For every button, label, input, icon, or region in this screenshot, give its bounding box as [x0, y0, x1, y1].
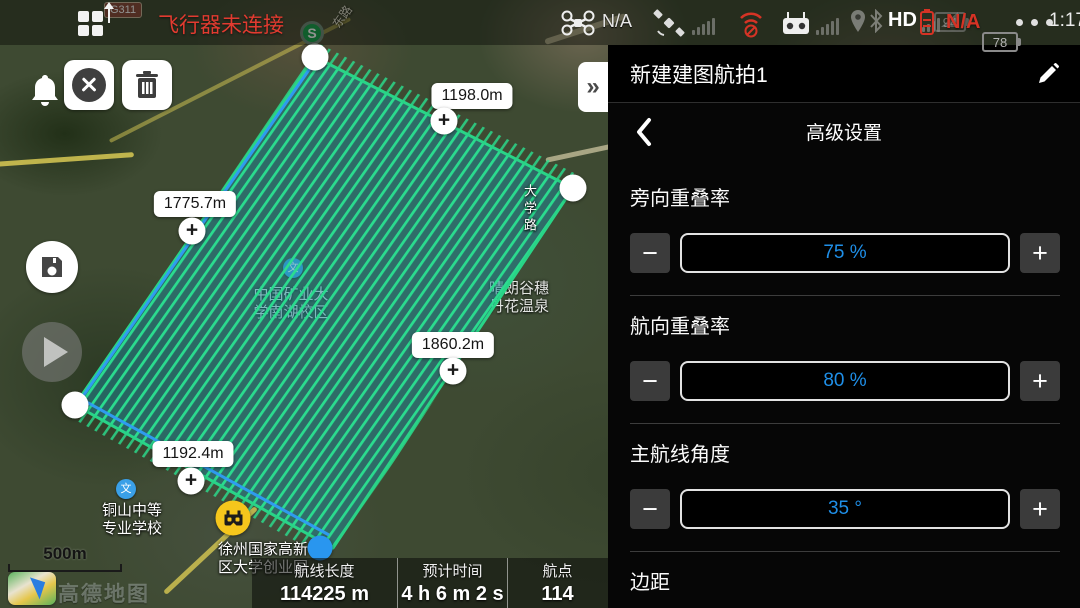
- increment-button[interactable]: +: [1020, 489, 1060, 529]
- divider: [630, 423, 1060, 424]
- clock-time: 1:17: [1049, 10, 1080, 32]
- notification-bell-button[interactable]: [28, 72, 62, 115]
- close-mission-button[interactable]: [64, 60, 114, 110]
- amap-logo: [8, 572, 56, 605]
- road: [0, 152, 134, 167]
- stat-waypoints: 航点 114: [507, 558, 607, 608]
- status-bar: 飞行器未连接 N/A: [0, 0, 1080, 45]
- battery-alert-status: N/A: [946, 11, 980, 34]
- panel-expand-button[interactable]: »: [578, 62, 608, 112]
- course-angle-input[interactable]: 35 °: [680, 489, 1010, 529]
- save-mission-button[interactable]: [26, 241, 78, 293]
- mission-title: 新建建图航拍1: [630, 59, 1036, 89]
- amap-watermark: 高德地图: [58, 578, 150, 608]
- remote-controller-icon: [780, 10, 812, 36]
- goggles-marker-icon: [216, 501, 251, 536]
- bluetooth-icon: [869, 9, 883, 33]
- app-screen: 中国矿业大学南湖校区 文 晴朗谷穗丹花温泉 东路 G311: [0, 0, 1080, 608]
- drone-icon: [560, 10, 596, 36]
- save-icon: [39, 254, 65, 280]
- decrement-button[interactable]: −: [630, 233, 670, 273]
- settings-panel: 新建建图航拍1 高级设置 旁向重叠率 − 75 % + 航向重叠率: [608, 45, 1080, 608]
- connection-status: 飞行器未连接: [158, 9, 284, 39]
- edge-distance-badge: 1192.4m: [152, 441, 233, 467]
- course-angle-stepper: − 35 ° +: [630, 489, 1060, 529]
- edge-distance-badge: 1198.0m: [431, 83, 512, 109]
- delete-mission-button[interactable]: [122, 60, 172, 110]
- field-label-margin: 边距: [630, 566, 1060, 595]
- mission-stats-bar: 航线长度 114225 m 预计时间 4 h 6 m 2 s 航点 114: [252, 558, 608, 608]
- school-icon: 文: [283, 258, 303, 278]
- mission-title-bar: 新建建图航拍1: [608, 45, 1080, 103]
- plus-icon: +: [438, 109, 450, 132]
- trash-icon: [134, 70, 160, 100]
- increment-button[interactable]: +: [1020, 361, 1060, 401]
- hd-label: HD: [888, 9, 917, 32]
- scale-label: 500m: [8, 544, 122, 564]
- chevron-left-icon: [635, 117, 653, 147]
- polygon-vertex[interactable]: [560, 175, 587, 202]
- plus-icon: +: [186, 219, 198, 242]
- forward-overlap-stepper: − 80 % +: [630, 361, 1060, 401]
- school-icon: 文: [116, 479, 136, 499]
- edge-midpoint-handle[interactable]: +: [179, 218, 206, 245]
- back-button[interactable]: [626, 115, 662, 149]
- scale-bar: [8, 564, 122, 572]
- more-dots-icon[interactable]: [1016, 19, 1053, 26]
- stat-estimated-time: 预计时间 4 h 6 m 2 s: [397, 558, 507, 608]
- field-label-side-overlap: 旁向重叠率: [630, 182, 1060, 211]
- road-name-vertical: 大学路: [520, 184, 539, 235]
- play-icon: [44, 337, 68, 367]
- settings-fields: 旁向重叠率 − 75 % + 航向重叠率 − 80 % + 主航线角度 − 35…: [608, 182, 1080, 608]
- close-icon: [72, 68, 106, 102]
- polygon-vertex-selected[interactable]: [308, 536, 333, 561]
- edit-pencil-button[interactable]: [1036, 62, 1060, 86]
- no-signal-icon: [736, 8, 766, 38]
- edge-distance-badge: 1860.2m: [412, 332, 494, 358]
- rc-signal-bars: [816, 18, 839, 35]
- side-overlap-input[interactable]: 75 %: [680, 233, 1010, 273]
- plus-icon: +: [447, 359, 459, 382]
- poi-label-university: 中国矿业大学南湖校区: [253, 286, 328, 322]
- field-label-forward-overlap: 航向重叠率: [630, 310, 1060, 339]
- decrement-button[interactable]: −: [630, 361, 670, 401]
- poi-label-school: 铜山中等专业学校: [102, 502, 162, 538]
- decrement-button[interactable]: −: [630, 489, 670, 529]
- edge-midpoint-handle[interactable]: +: [431, 108, 458, 135]
- edge-midpoint-handle[interactable]: +: [178, 468, 205, 495]
- divider: [630, 295, 1060, 296]
- plus-icon: +: [185, 469, 197, 492]
- start-mission-button[interactable]: [22, 322, 82, 382]
- gps-signal-bars: [692, 18, 715, 35]
- poi-label-hotspring: 晴朗谷穗丹花温泉: [489, 280, 549, 316]
- field-label-course-angle: 主航线角度: [630, 438, 1060, 467]
- edge-distance-badge: 1775.7m: [154, 191, 236, 217]
- chevrons-right-icon: »: [586, 73, 599, 101]
- location-pin-icon: [850, 9, 866, 33]
- settings-subtitle: 高级设置: [806, 118, 882, 145]
- drone-link-status: N/A: [602, 11, 632, 32]
- map-scale: 500m: [8, 544, 122, 572]
- divider: [630, 551, 1060, 552]
- bell-icon: [28, 72, 62, 110]
- arrow-up-icon: [108, 9, 110, 23]
- advanced-settings-header: 高级设置: [608, 103, 1080, 160]
- polygon-vertex[interactable]: [302, 44, 329, 71]
- amap-plane-icon: [16, 575, 45, 600]
- forward-overlap-input[interactable]: 80 %: [680, 361, 1010, 401]
- battery-rc: 78: [982, 32, 1018, 52]
- stat-route-length: 航线长度 114225 m: [252, 558, 397, 608]
- polygon-vertex[interactable]: [62, 392, 89, 419]
- satellite-icon: [652, 9, 686, 37]
- edge-midpoint-handle[interactable]: +: [440, 358, 467, 385]
- increment-button[interactable]: +: [1020, 233, 1060, 273]
- side-overlap-stepper: − 75 % +: [630, 233, 1060, 273]
- layout-switch-button[interactable]: [78, 7, 112, 37]
